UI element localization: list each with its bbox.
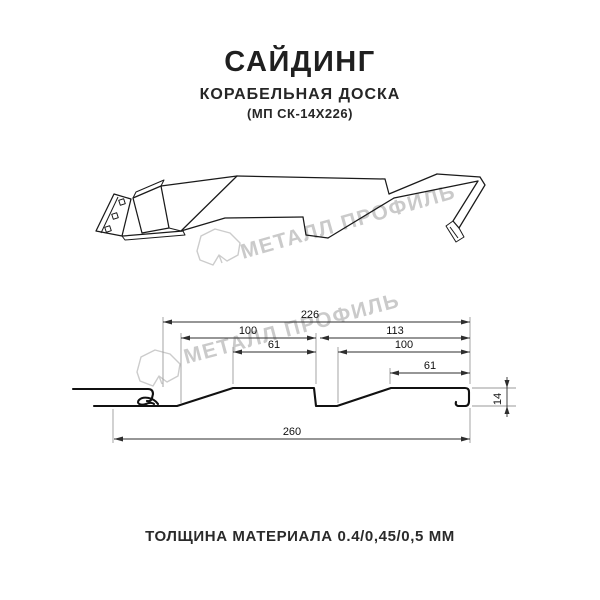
dim-label-226: 226 — [301, 309, 319, 321]
dim-right-top-61: 61 — [390, 360, 470, 376]
dim-overall-260: 260 — [114, 426, 470, 442]
dim-label-260: 260 — [283, 426, 301, 438]
thickness-note: ТОЛЩИНА МАТЕРИАЛА 0.4/0,45/0,5 ММ — [0, 528, 600, 545]
nail-hole-icon — [119, 199, 126, 206]
lock-rib — [133, 186, 169, 233]
dim-label-14: 14 — [492, 393, 504, 405]
cross-section-view: МЕТАЛЛ ПРОФИЛЬ — [73, 289, 516, 443]
extension-lines — [113, 317, 516, 443]
end-cut-inner — [453, 181, 478, 228]
product-drawing-page: САЙДИНГ КОРАБЕЛЬНАЯ ДОСКА (МП СК-14Х226)… — [0, 0, 600, 600]
valley-floor-line — [169, 228, 181, 231]
nail-hole-icon — [105, 226, 112, 233]
watermark-text: МЕТАЛЛ ПРОФИЛЬ — [238, 180, 458, 264]
dim-label-100-left: 100 — [239, 325, 257, 337]
dim-label-61-left: 61 — [268, 339, 280, 351]
lock-rib-fold — [133, 180, 164, 198]
back-edge-left — [161, 176, 237, 186]
flat2-back-edge — [437, 174, 480, 177]
flat1-back-edge — [237, 176, 385, 179]
dim-coverage-226: 226 — [163, 309, 470, 325]
dim-label-100-right: 100 — [395, 339, 413, 351]
valley-edge — [123, 231, 183, 236]
watermark-section: МЕТАЛЛ ПРОФИЛЬ — [137, 289, 402, 386]
profile-outline — [73, 388, 469, 406]
dim-label-113: 113 — [386, 325, 404, 337]
profile-3d-sketch: МЕТАЛЛ ПРОФИЛЬ — [96, 174, 485, 265]
nail-hole-icon — [112, 213, 119, 220]
technical-drawing-canvas: МЕТАЛЛ ПРОФИЛЬ — [0, 0, 600, 600]
watermark-text: МЕТАЛЛ ПРОФИЛЬ — [181, 289, 402, 369]
nail-strip — [96, 194, 131, 236]
dim-right-inner-100: 100 — [338, 339, 470, 355]
metall-profil-logo-icon — [137, 350, 180, 386]
metall-profil-logo-icon — [197, 229, 240, 265]
dim-label-61-right: 61 — [424, 360, 436, 372]
groove-back-notch — [385, 179, 389, 194]
dim-height-14: 14 — [492, 377, 510, 417]
